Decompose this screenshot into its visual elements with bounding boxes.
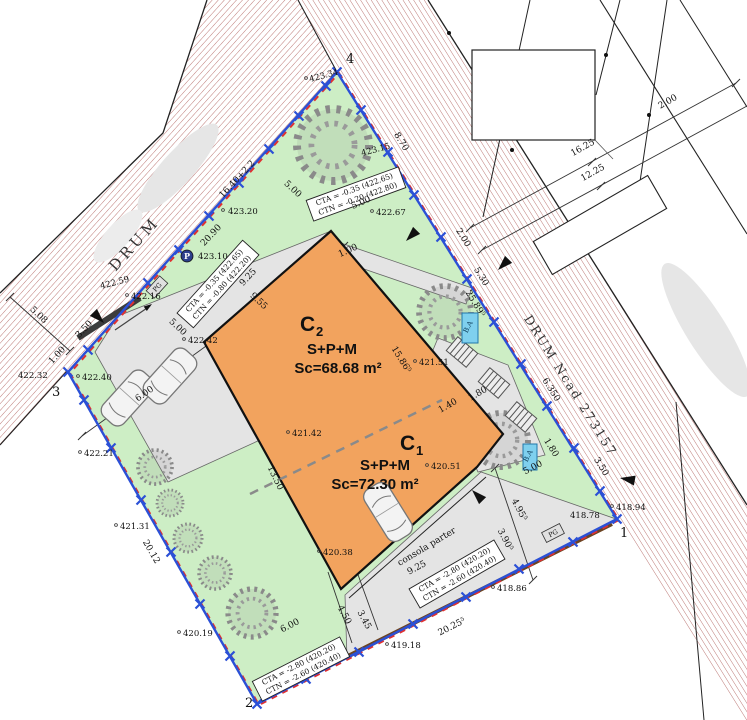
- bush: [138, 450, 172, 484]
- neighbor-building-rect: [472, 50, 595, 140]
- survey-point-dot: [647, 113, 651, 117]
- svg-text:422.21: 422.21: [84, 449, 114, 459]
- svg-text:420.19: 420.19: [183, 629, 213, 639]
- basin-1: B.A: [462, 313, 478, 343]
- svg-text:421.31: 421.31: [120, 522, 150, 532]
- svg-text:420.38: 420.38: [323, 548, 353, 558]
- dim-tick: [78, 432, 86, 440]
- svg-text:20.12: 20.12: [140, 538, 162, 565]
- dim-tick: [588, 158, 596, 166]
- vertex-2: 2: [245, 696, 253, 711]
- bush: [157, 490, 183, 516]
- neighbor-line-3: [638, 0, 667, 195]
- svg-text:420.51: 420.51: [431, 462, 461, 472]
- svg-text:16.25: 16.25: [569, 137, 597, 158]
- dim-tick: [597, 182, 605, 190]
- svg-text:419.18: 419.18: [391, 641, 421, 651]
- vertex-3: 3: [52, 385, 60, 400]
- c2-letter: C: [300, 313, 315, 336]
- pole-label: P: [184, 251, 190, 261]
- dim-extension-line: [595, 140, 613, 159]
- svg-text:418.78: 418.78: [570, 511, 600, 521]
- bush: [228, 589, 276, 637]
- dim-tick: [732, 79, 740, 87]
- c1-letter: C: [400, 432, 415, 455]
- svg-text:422.40: 422.40: [82, 373, 112, 383]
- survey-point-dot: [604, 53, 608, 57]
- road-right-farther-edge: [680, 0, 747, 107]
- c1-index: 1: [416, 443, 423, 458]
- neighbor-line-2: [596, 0, 620, 95]
- site-plan-svg: B.A B.A PG PG: [0, 0, 747, 720]
- svg-text:422.32: 422.32: [18, 371, 48, 381]
- utility-pole: P: [181, 250, 193, 262]
- svg-text:423.10: 423.10: [198, 252, 228, 262]
- c2-area: Sc=68.68 m²: [294, 360, 381, 377]
- svg-text:423.20: 423.20: [228, 207, 258, 217]
- survey-point-dot: [510, 148, 514, 152]
- dim-tick: [529, 576, 537, 584]
- svg-text:422.42: 422.42: [188, 336, 218, 346]
- svg-text:422.16: 422.16: [131, 292, 161, 302]
- bush: [199, 557, 231, 589]
- c1-regime: S+P+M: [360, 457, 410, 474]
- svg-text:422.67: 422.67: [376, 208, 406, 218]
- svg-text:418.94: 418.94: [616, 503, 646, 513]
- c2-index: 2: [316, 324, 323, 339]
- svg-text:418.86: 418.86: [497, 584, 527, 594]
- site-plan: B.A B.A PG PG: [0, 0, 747, 720]
- c2-regime: S+P+M: [307, 341, 357, 358]
- vertex-1: 1: [620, 526, 628, 541]
- bush: [174, 524, 202, 552]
- svg-text:421.51: 421.51: [419, 358, 449, 368]
- svg-text:20.25⁵: 20.25⁵: [437, 616, 468, 638]
- survey-point-dot: [447, 31, 451, 35]
- svg-text:421.42: 421.42: [292, 429, 322, 439]
- c1-area: Sc=72.30 m²: [331, 476, 418, 493]
- tree: [297, 109, 369, 181]
- vertex-4: 4: [346, 52, 354, 67]
